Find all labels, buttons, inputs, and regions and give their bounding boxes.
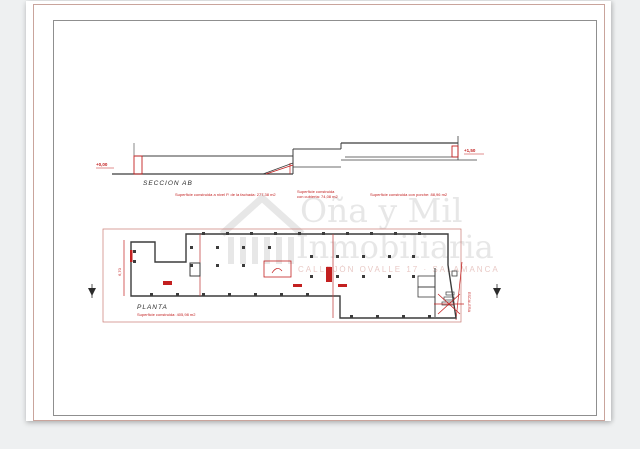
section-cut-arrow-right: [493, 284, 501, 298]
plan-left-dimension-label: 6,70: [117, 267, 122, 276]
plan-area-note: Superficie construida: 405,98 m2: [137, 312, 196, 317]
drawing-sheet: Oña y Mil Inmobiliaria CALLEJÓN OVALLE 1…: [26, 1, 611, 421]
stair-symbol: [434, 292, 464, 314]
plan-title: PLANTA: [137, 304, 168, 311]
section-cut-arrow-left: [88, 284, 96, 298]
section-note-left: Superficie construida a nivel P. de la f…: [175, 192, 276, 197]
section-right-level-label: +1,50: [464, 148, 476, 153]
architectural-drawing: Oña y Mil Inmobiliaria CALLEJÓN OVALLE 1…: [26, 1, 611, 421]
house-icon: [222, 198, 302, 264]
section-drawing: +0,00 +1,50 SECCION AB Superficie constr…: [96, 136, 484, 199]
section-note-mid-2: con cubierta: 74,08 m2: [297, 194, 338, 199]
section-note-right: Superficie construida con porche: 88,96 …: [370, 192, 448, 197]
plan-stair-label: ESCALERA: [467, 292, 471, 313]
section-left-level-label: +0,00: [96, 162, 108, 167]
section-title: SECCION AB: [143, 180, 193, 187]
